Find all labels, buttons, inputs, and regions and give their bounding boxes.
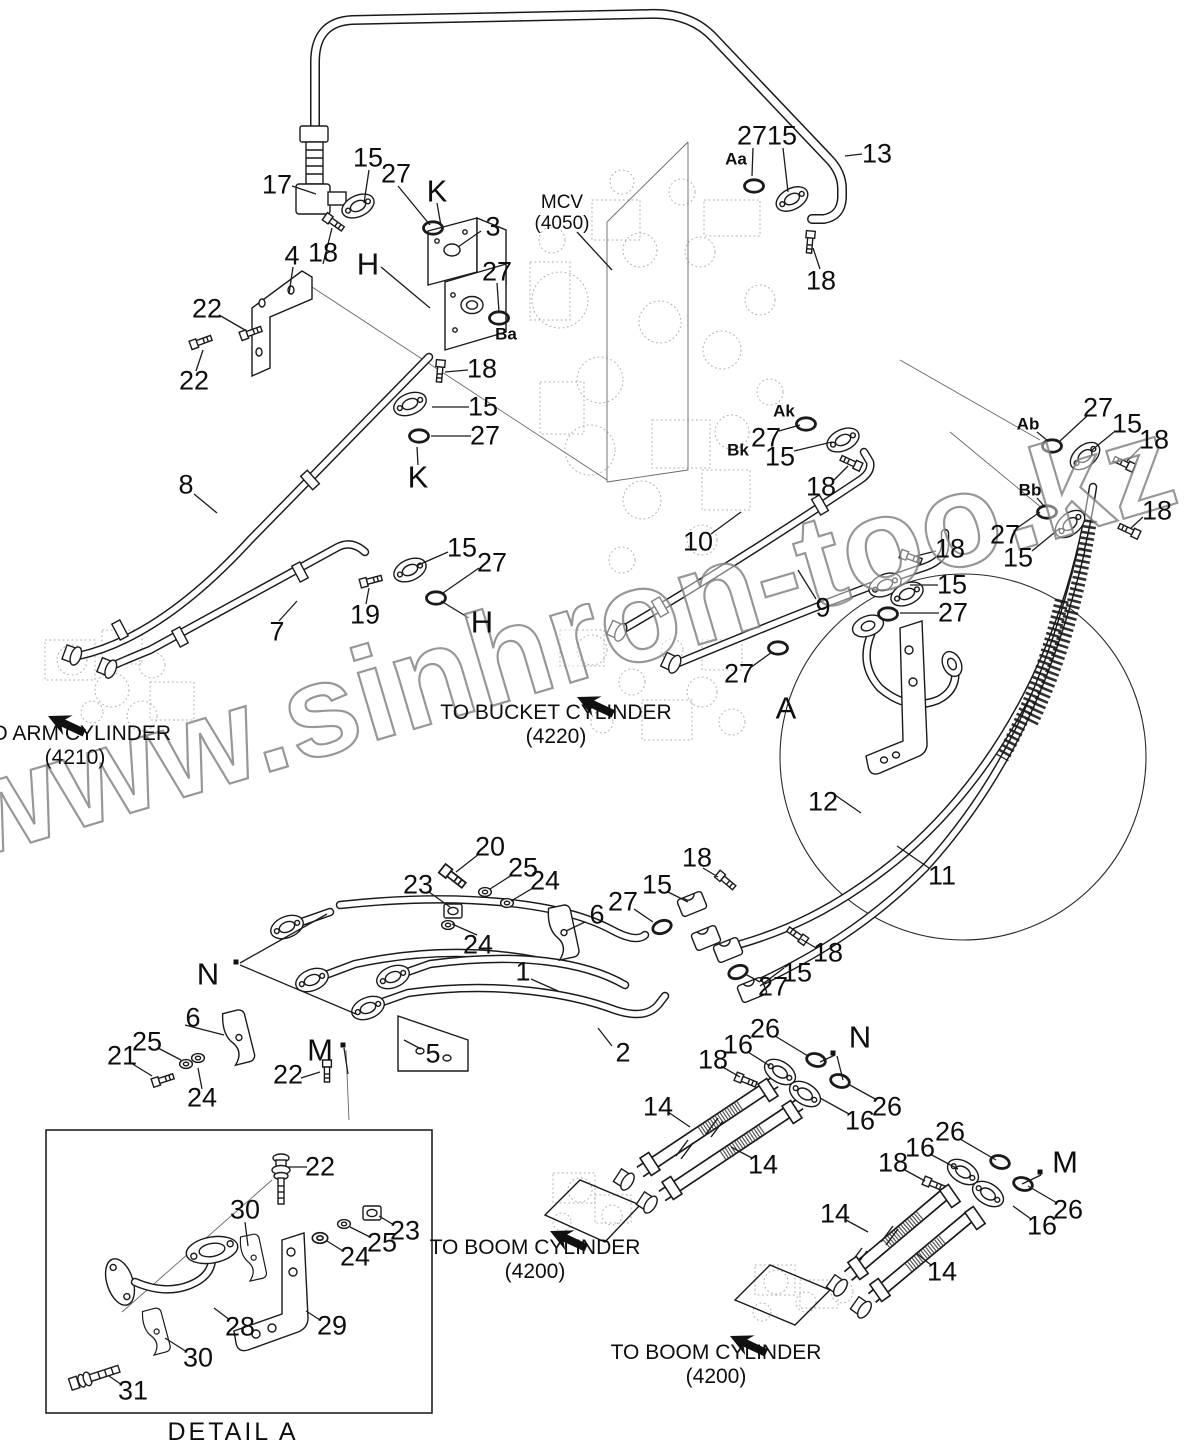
callout-18: 18 xyxy=(806,474,836,501)
callout-22: 22 xyxy=(273,1062,303,1089)
destination-label-3: TO BOOM CYLINDER(4200) xyxy=(430,1236,641,1284)
callout-10: 10 xyxy=(683,529,713,556)
callout-9: 9 xyxy=(815,595,830,622)
destination-line2: (4200) xyxy=(611,1365,822,1389)
destination-label-2: TO BUCKET CYLINDER(4220) xyxy=(440,701,671,749)
destination-line2: (4220) xyxy=(440,725,671,749)
detail-a-circle xyxy=(780,574,1146,940)
callout-15: 15 xyxy=(1112,411,1142,438)
callout-28: 28 xyxy=(225,1314,255,1341)
callout-27: 27 xyxy=(737,123,767,150)
callout-bb: Bb xyxy=(1019,482,1042,499)
callout-20: 20 xyxy=(475,834,505,861)
elbow-assembly-a xyxy=(850,611,966,774)
callout-15: 15 xyxy=(353,145,383,172)
callout-5: 5 xyxy=(425,1041,440,1068)
callout-bk: Bk xyxy=(727,442,749,459)
callout-7: 7 xyxy=(269,619,284,646)
bracket-4 xyxy=(252,271,312,376)
callout-27: 27 xyxy=(608,889,638,916)
callout-h: H xyxy=(471,607,493,638)
mcv-label-line2: (4050) xyxy=(535,213,590,234)
fitting-17 xyxy=(296,126,346,214)
callout-27: 27 xyxy=(938,600,968,627)
callout-15: 15 xyxy=(767,123,797,150)
callout-k: K xyxy=(427,176,448,207)
bolt-31 xyxy=(68,1362,121,1391)
callout-15: 15 xyxy=(1003,545,1033,572)
callout-18: 18 xyxy=(878,1150,908,1177)
callout-18: 18 xyxy=(467,356,497,383)
diagram-page: www.sinhron-too.kz MCV (4050) DETAIL A T… xyxy=(0,0,1184,1456)
callout-19: 19 xyxy=(350,602,380,629)
callout-15: 15 xyxy=(642,872,672,899)
callout-27: 27 xyxy=(1083,395,1113,422)
detail-a-caption: DETAIL A xyxy=(168,1418,299,1447)
callout-27: 27 xyxy=(724,661,754,688)
callout-18: 18 xyxy=(682,845,712,872)
callout-27: 27 xyxy=(470,423,500,450)
callout-ba: Ba xyxy=(495,326,517,343)
callout-18: 18 xyxy=(813,940,843,967)
callout-16: 16 xyxy=(1027,1213,1057,1240)
callout-27: 27 xyxy=(477,550,507,577)
callout-18: 18 xyxy=(698,1047,728,1074)
callout-25: 25 xyxy=(367,1230,397,1257)
callout-ab: Ab xyxy=(1017,416,1040,433)
callout-8: 8 xyxy=(178,472,193,499)
mcv-label-line1: MCV xyxy=(535,192,590,213)
callout-26: 26 xyxy=(1053,1197,1083,1224)
callout-23: 23 xyxy=(403,872,433,899)
callout-30: 30 xyxy=(230,1197,260,1224)
callout-29: 29 xyxy=(317,1313,347,1340)
callout-18: 18 xyxy=(308,240,338,267)
callout-m: M xyxy=(307,1035,333,1066)
callout-14: 14 xyxy=(643,1094,673,1121)
callout-18: 18 xyxy=(935,536,965,563)
callout-n: N xyxy=(197,959,219,990)
callout-31: 31 xyxy=(118,1378,148,1405)
callout-14: 14 xyxy=(820,1201,850,1228)
destination-label-4: TO BOOM CYLINDER(4200) xyxy=(611,1341,822,1389)
callout-11: 11 xyxy=(928,863,956,890)
callout-15: 15 xyxy=(765,444,795,471)
callout-13: 13 xyxy=(862,141,892,168)
callout-24: 24 xyxy=(187,1085,217,1112)
callout-16: 16 xyxy=(845,1108,875,1135)
callout-26: 26 xyxy=(872,1094,902,1121)
callout-k: K xyxy=(408,462,429,493)
callout-27: 27 xyxy=(758,974,788,1001)
callout-4: 4 xyxy=(284,243,299,270)
split-flange-clamps xyxy=(677,891,768,1003)
callout-ak: Ak xyxy=(773,403,795,420)
callout-h: H xyxy=(357,249,379,280)
mcv-label: MCV (4050) xyxy=(535,192,590,235)
callout-27: 27 xyxy=(482,259,512,286)
callout-22: 22 xyxy=(192,296,222,323)
callout-18: 18 xyxy=(806,268,836,295)
callout-14: 14 xyxy=(748,1152,778,1179)
callout-22: 22 xyxy=(305,1154,335,1181)
callout-1: 1 xyxy=(515,959,530,986)
callout-26: 26 xyxy=(750,1016,780,1043)
callout-15: 15 xyxy=(468,394,498,421)
callout-30: 30 xyxy=(183,1345,213,1372)
callout-26: 26 xyxy=(935,1119,965,1146)
destination-line2: (4200) xyxy=(430,1260,641,1284)
destination-line1: TO BOOM CYLINDER xyxy=(611,1341,822,1365)
callout-27: 27 xyxy=(381,161,411,188)
destination-label-1: TO ARM CYLINDER(4210) xyxy=(0,722,171,770)
pipe-7 xyxy=(112,544,365,666)
bolt-22-detail xyxy=(272,1154,290,1204)
callout-24: 24 xyxy=(463,932,493,959)
callout-aa: Aa xyxy=(725,151,747,168)
callout-m: M xyxy=(1052,1147,1078,1178)
callout-14: 14 xyxy=(927,1259,957,1286)
callout-3: 3 xyxy=(485,214,500,241)
callout-22: 22 xyxy=(179,368,209,395)
callout-12: 12 xyxy=(808,789,838,816)
callout-18: 18 xyxy=(1139,427,1169,454)
callout-6: 6 xyxy=(185,1005,200,1032)
flanges xyxy=(267,182,1104,1212)
destination-line2: (4210) xyxy=(0,746,171,770)
callout-24: 24 xyxy=(530,868,560,895)
callout-25: 25 xyxy=(132,1029,162,1056)
callout-18: 18 xyxy=(1142,498,1172,525)
destination-line1: TO ARM CYLINDER xyxy=(0,722,171,746)
callout-15: 15 xyxy=(447,535,477,562)
callout-n: N xyxy=(849,1022,871,1053)
destination-line1: TO BOOM CYLINDER xyxy=(430,1236,641,1260)
callout-17: 17 xyxy=(262,172,292,199)
callout-a: A xyxy=(776,693,797,724)
callout-16: 16 xyxy=(905,1135,935,1162)
detail-a-box xyxy=(46,1130,432,1413)
destination-line1: TO BUCKET CYLINDER xyxy=(440,701,671,725)
callout-2: 2 xyxy=(615,1040,630,1067)
callout-24: 24 xyxy=(340,1244,370,1271)
callout-15: 15 xyxy=(937,572,967,599)
callout-6: 6 xyxy=(589,902,604,929)
